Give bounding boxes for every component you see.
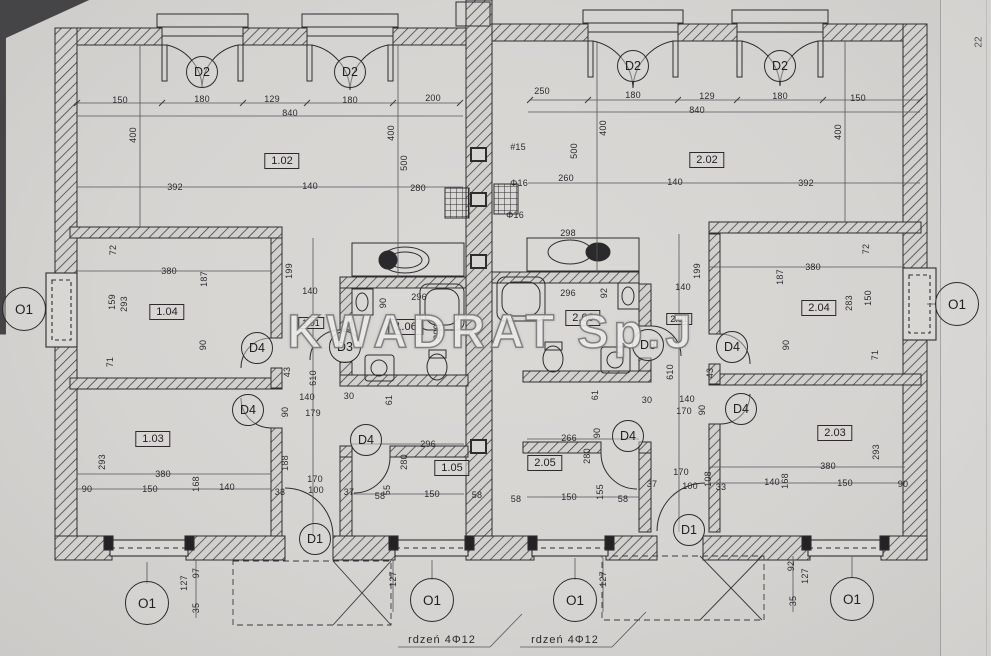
room-label-1.04: 1.04 <box>149 304 184 320</box>
dim-label: 155 <box>595 484 605 500</box>
dim-label: 140 <box>667 177 683 187</box>
dim-label: 187 <box>775 269 785 285</box>
dim-label: 392 <box>798 178 814 188</box>
door-tag-D2: D2 <box>334 56 366 88</box>
dim-label: 150 <box>863 290 873 306</box>
kitchen-sink-right <box>548 240 592 264</box>
dim-label: 90 <box>697 405 707 415</box>
dim-label: 33 <box>275 487 285 497</box>
porches <box>233 556 764 625</box>
dim-label: 127 <box>800 568 810 584</box>
dim-label: 179 <box>305 408 321 418</box>
dim-label: 150 <box>142 484 158 494</box>
dim-label: 61 <box>590 390 600 400</box>
dim-label: 293 <box>871 444 881 460</box>
room-label-2.03: 2.03 <box>817 425 852 441</box>
dim-label: 55 <box>382 485 392 495</box>
dim-label: 500 <box>399 155 409 171</box>
dim-label: 180 <box>772 91 788 101</box>
dim-label: 43 <box>282 367 292 377</box>
dim-label: 140 <box>679 394 695 404</box>
room-label-1.03: 1.03 <box>135 431 170 447</box>
dim-label: 140 <box>764 477 780 487</box>
dim-label: 33 <box>716 482 726 492</box>
dim-label: 293 <box>97 454 107 470</box>
dim-label: 150 <box>112 95 128 105</box>
dim-label: 30 <box>642 395 652 405</box>
dim-label: 150 <box>424 489 440 499</box>
dim-label: 150 <box>837 478 853 488</box>
dim-label: 280 <box>399 454 409 470</box>
dim-label: 35 <box>191 603 201 613</box>
dim-label: 180 <box>342 95 358 105</box>
dim-label: 100 <box>682 481 698 491</box>
room-label-1.02: 1.02 <box>264 153 299 169</box>
exterior-walls <box>55 0 927 560</box>
scanned-floor-plan: 1501801291802008402501801291801508404004… <box>0 0 991 656</box>
dim-label: #15 <box>510 142 526 152</box>
dim-label: 170 <box>307 474 323 484</box>
note-rdzen: rdzeń 4Φ12 <box>408 634 476 646</box>
dim-label: 266 <box>561 433 577 443</box>
dim-label: 187 <box>199 271 209 287</box>
dim-label: 168 <box>191 476 201 492</box>
dim-label: Φ16 <box>506 210 524 220</box>
dim-label: 392 <box>167 182 183 192</box>
dim-label: 150 <box>561 492 577 502</box>
dim-label: 500 <box>569 143 579 159</box>
dim-label: 400 <box>386 125 396 141</box>
dim-label: 140 <box>219 482 235 492</box>
dim-label: 199 <box>284 263 294 279</box>
dim-label: 30 <box>344 391 354 401</box>
dim-label: 280 <box>582 448 592 464</box>
dim-label: 90 <box>280 407 290 417</box>
dim-label: 840 <box>689 105 705 115</box>
sink-basin-dark-right <box>586 243 610 261</box>
dim-label: 840 <box>282 108 298 118</box>
dim-label: 90 <box>898 479 908 489</box>
dim-label: 380 <box>155 469 171 479</box>
dim-label: 108 <box>703 471 713 487</box>
dim-label: 127 <box>598 571 608 587</box>
dim-label: 296 <box>411 292 427 302</box>
dim-label: 127 <box>179 575 189 591</box>
window-tag-O1: O1 <box>410 578 454 622</box>
dim-label: 610 <box>308 370 318 386</box>
dim-label: 140 <box>302 181 318 191</box>
dim-label: Φ16 <box>510 178 528 188</box>
dim-label: 129 <box>699 91 715 101</box>
dim-label: 400 <box>833 124 843 140</box>
dim-label: 380 <box>805 262 821 272</box>
dim-label: 260 <box>558 173 574 183</box>
dim-label: 188 <box>280 455 290 471</box>
dim-label: 140 <box>299 392 315 402</box>
dim-label: 610 <box>665 364 675 380</box>
door-tag-D2: D2 <box>186 56 218 88</box>
dim-label: 400 <box>128 127 138 143</box>
dim-label: 170 <box>673 467 689 477</box>
dim-label: 43 <box>705 368 715 378</box>
dim-label: 72 <box>861 244 871 254</box>
dim-label: 296 <box>560 288 576 298</box>
sink-basin-dark-left <box>379 251 397 269</box>
dim-label: 293 <box>119 296 129 312</box>
room-label-2.05: 2.05 <box>527 455 562 471</box>
door-tag-D4: D4 <box>241 332 273 364</box>
kitchen-counter-right <box>527 238 639 271</box>
door-tag-D4: D4 <box>725 393 757 425</box>
dim-label: 150 <box>850 93 866 103</box>
dim-label: 298 <box>560 228 576 238</box>
window-tag-O1: O1 <box>125 581 169 625</box>
dim-label: 71 <box>870 350 880 360</box>
dim-label: 58 <box>618 494 628 504</box>
dim-label: 37 <box>647 479 657 489</box>
room-label-2.04: 2.04 <box>801 300 836 316</box>
window-tag-O1: O1 <box>830 577 874 621</box>
note-rdzen: rdzeń 4Φ12 <box>531 634 599 646</box>
dim-label: 180 <box>194 94 210 104</box>
door-tag-D1: D1 <box>299 523 331 555</box>
window-tag-O1: O1 <box>553 578 597 622</box>
window-tag-O1: O1 <box>935 282 979 326</box>
watermark: KWADRAT Sp.J <box>287 304 696 359</box>
dim-label: 170 <box>676 406 692 416</box>
dim-label: 129 <box>264 94 280 104</box>
dim-label: 100 <box>308 485 324 495</box>
door-tag-D1: D1 <box>673 514 705 546</box>
dim-label: 58 <box>511 494 521 504</box>
margin-note: 22 <box>974 36 985 47</box>
dim-label: 90 <box>592 428 602 438</box>
dim-label: 380 <box>820 461 836 471</box>
dim-label: 250 <box>534 86 550 96</box>
dim-label: 71 <box>105 357 115 367</box>
door-tag-D4: D4 <box>350 424 382 456</box>
dim-label: 127 <box>388 571 398 587</box>
dim-label: 280 <box>410 183 426 193</box>
dim-label: 90 <box>82 484 92 494</box>
dim-label: 140 <box>302 286 318 296</box>
dim-label: 283 <box>844 295 854 311</box>
dim-label: 200 <box>425 93 441 103</box>
room-label-1.05: 1.05 <box>434 460 469 476</box>
dim-label: 90 <box>781 340 791 350</box>
dim-label: 61 <box>384 395 394 405</box>
dim-label: 92 <box>786 561 796 571</box>
dim-label: 296 <box>420 439 436 449</box>
dim-label: 380 <box>161 266 177 276</box>
dim-label: 72 <box>108 245 118 255</box>
window-tag-O1: O1 <box>2 287 46 331</box>
door-tag-D4: D4 <box>232 394 264 426</box>
dim-label: 180 <box>625 90 641 100</box>
dim-label: 199 <box>692 263 702 279</box>
door-tag-D2: D2 <box>617 50 649 82</box>
dim-label: 168 <box>780 473 790 489</box>
dim-label: 35 <box>788 596 798 606</box>
door-tag-D4: D4 <box>612 420 644 452</box>
kitchen-counter-left <box>352 243 464 276</box>
dim-label: 140 <box>675 282 691 292</box>
dim-label: 58 <box>472 490 482 500</box>
door-tag-D4: D4 <box>716 331 748 363</box>
dim-label: 92 <box>599 288 609 298</box>
room-label-2.02: 2.02 <box>689 152 724 168</box>
dim-label: 159 <box>107 294 117 310</box>
dim-label: 97 <box>191 568 201 578</box>
dim-label: 37 <box>344 487 354 497</box>
door-tag-D2: D2 <box>764 50 796 82</box>
dim-label: 400 <box>598 120 608 136</box>
dim-label: 90 <box>198 340 208 350</box>
